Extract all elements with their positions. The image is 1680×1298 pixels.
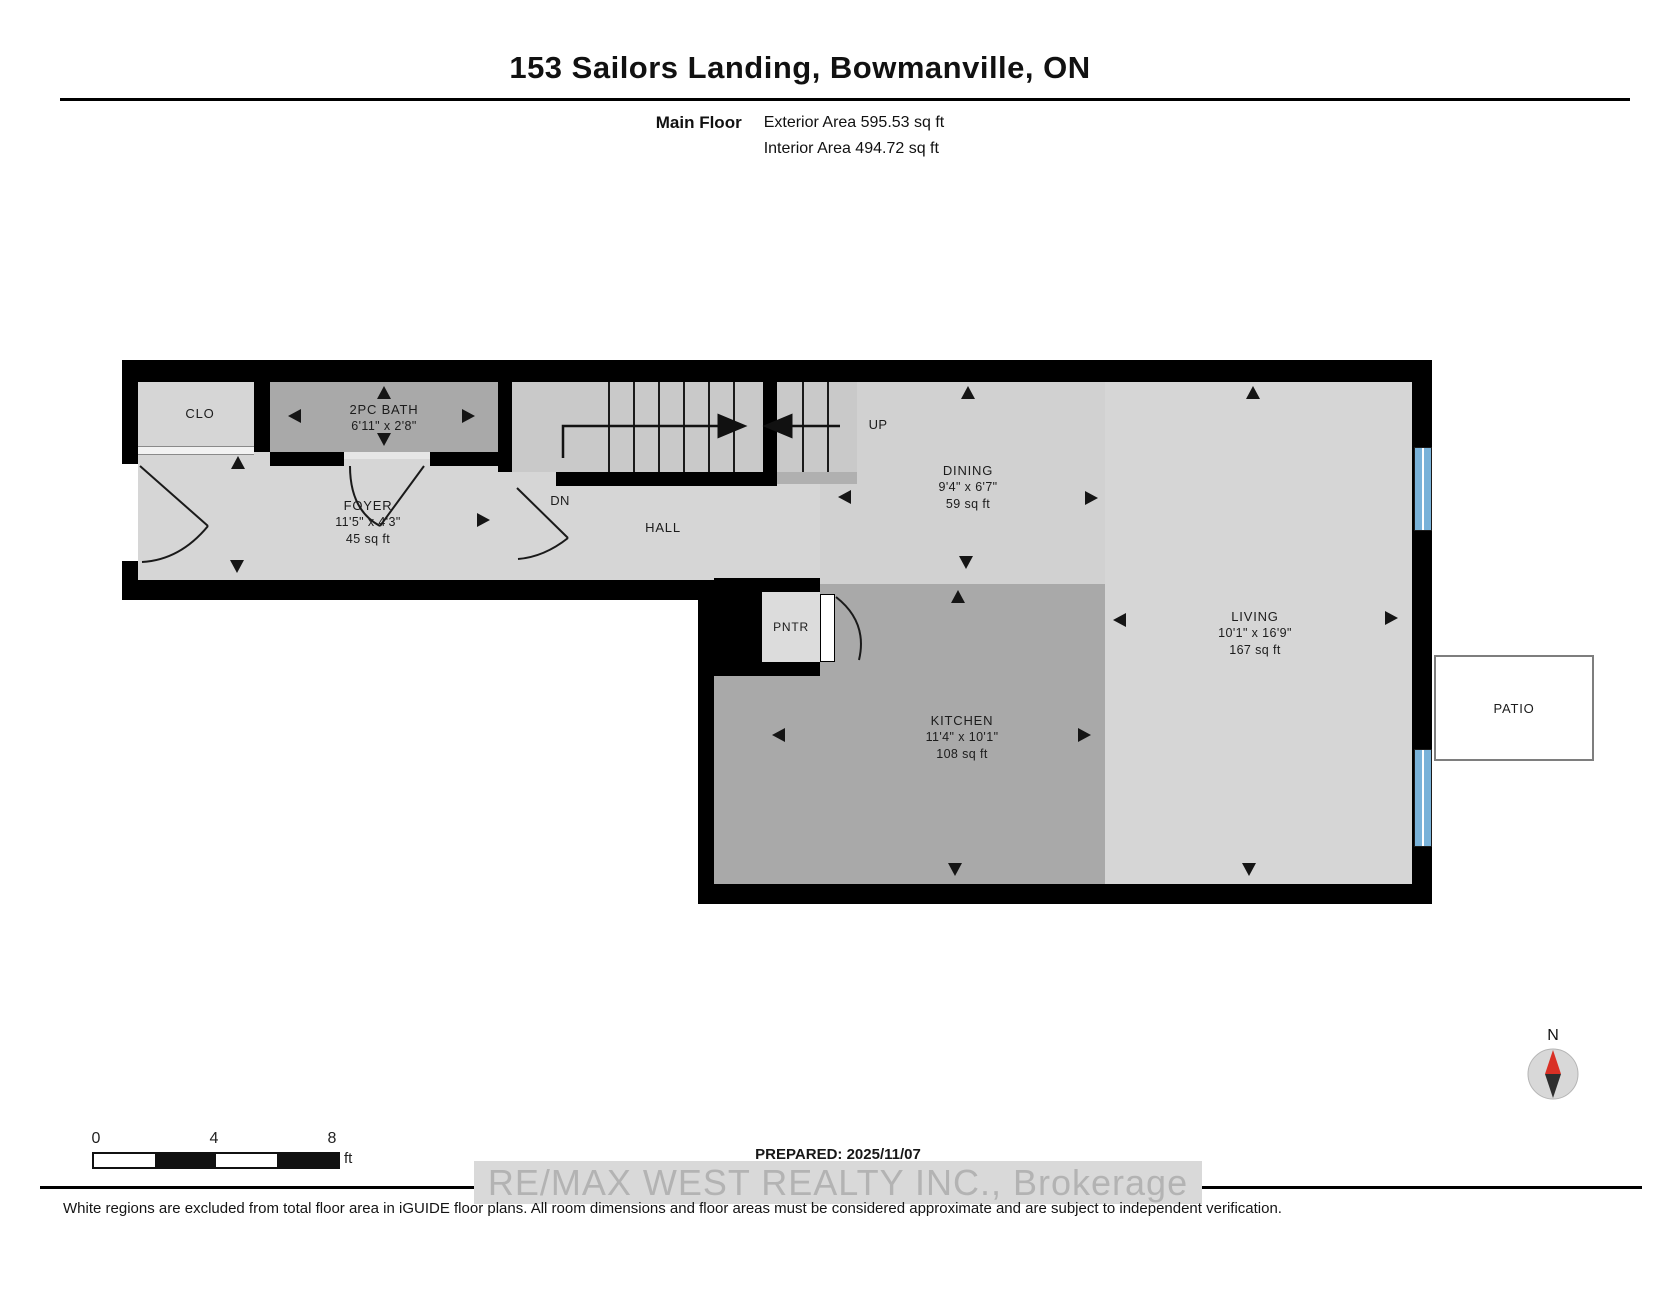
plan-annotations <box>0 0 1680 1298</box>
pantry-door-arc <box>836 597 861 660</box>
north-label: N <box>1547 1027 1559 1044</box>
stair-door-arc <box>517 488 568 559</box>
floor-plan-page: 153 Sailors Landing, Bowmanville, ON Mai… <box>0 0 1680 1298</box>
entry-door-arc <box>140 466 208 562</box>
brokerage-watermark: RE/MAX WEST REALTY INC., Brokerage <box>0 1162 1676 1204</box>
disclaimer-text: White regions are excluded from total fl… <box>63 1200 1623 1217</box>
stair-direction-arrow-down <box>563 426 740 458</box>
bath-door-arc <box>350 466 424 526</box>
compass: N <box>1508 1012 1598 1132</box>
